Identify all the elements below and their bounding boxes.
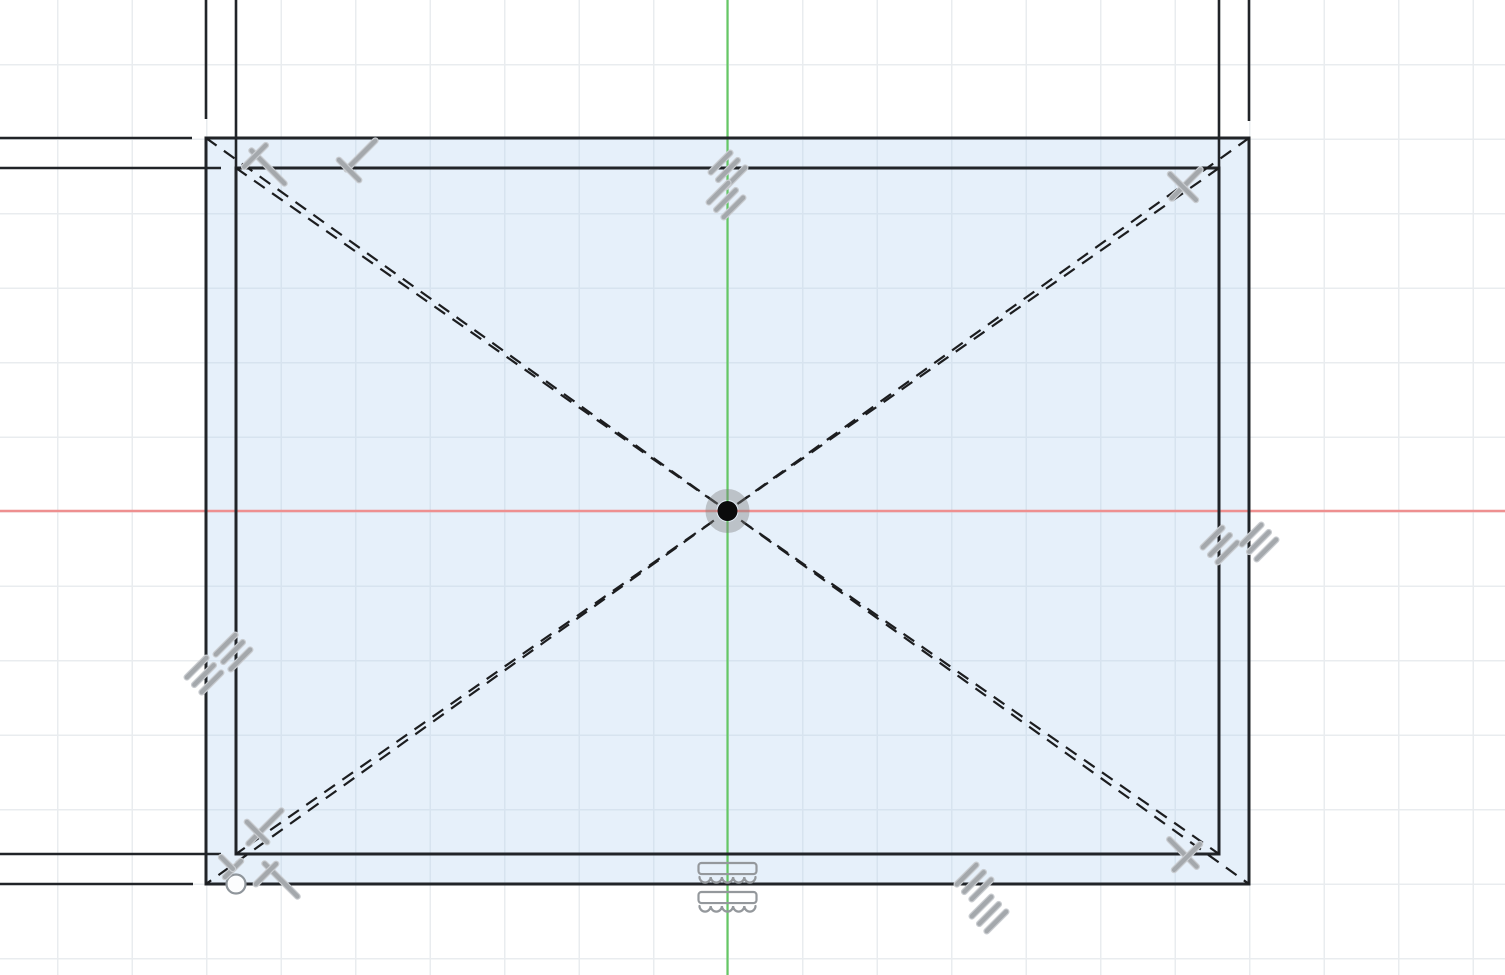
origin-point[interactable] xyxy=(718,501,738,521)
sketch-canvas[interactable] xyxy=(0,0,1505,975)
sketch-entities-layer xyxy=(0,0,1505,975)
